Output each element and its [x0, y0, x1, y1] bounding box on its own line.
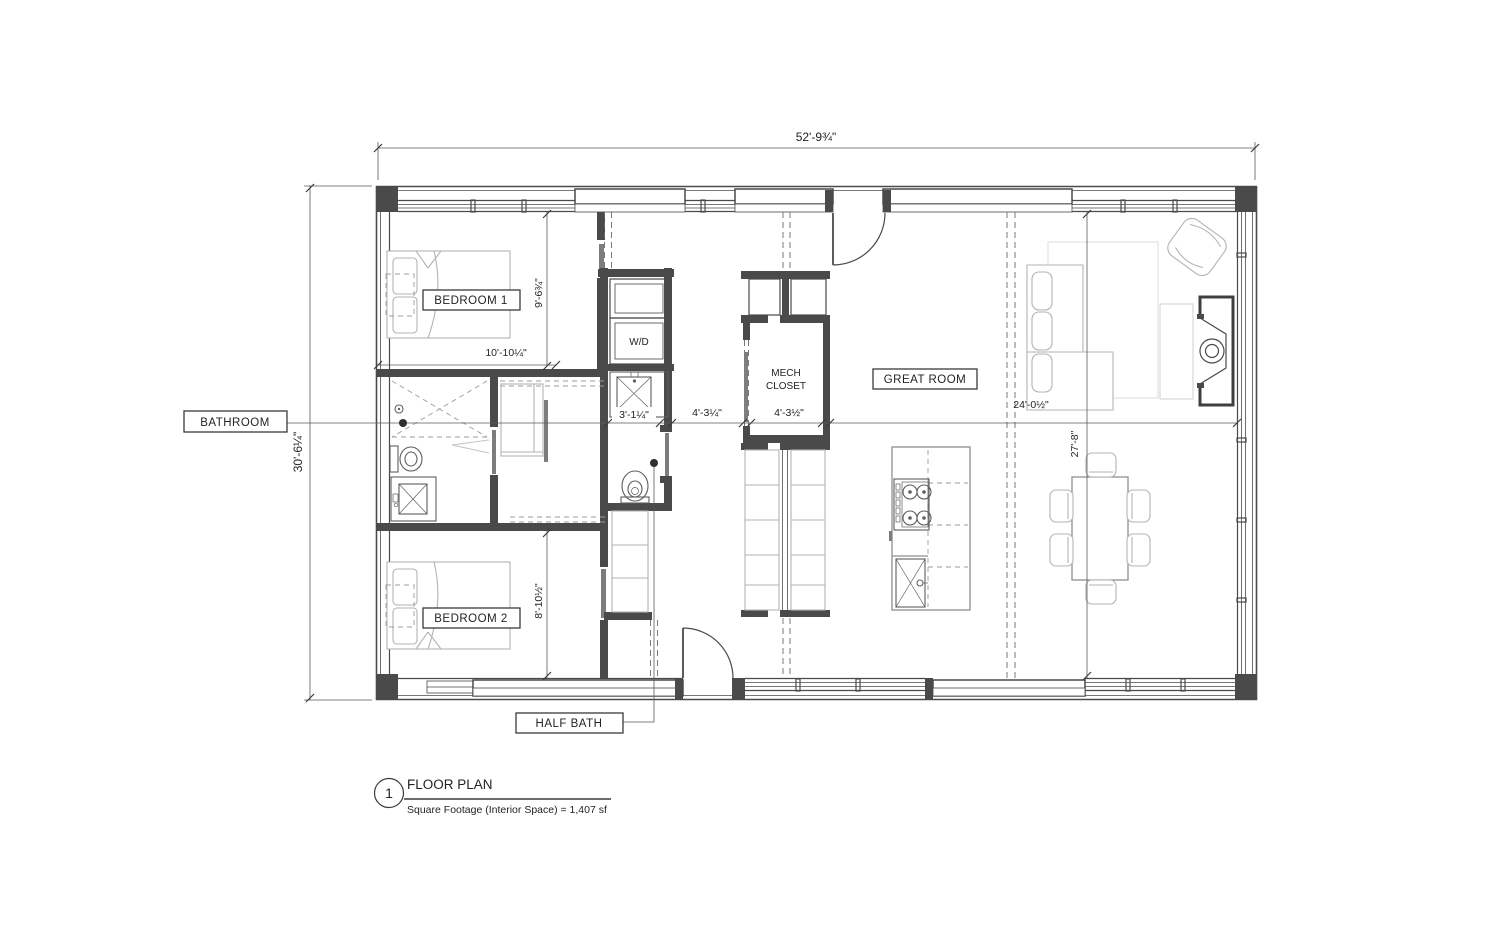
dining-chair — [1086, 453, 1116, 477]
toilet-symbol-bathroom — [390, 446, 422, 472]
door-swing-bathroom — [452, 440, 489, 453]
label-mech-closet-line1: MECH — [771, 368, 800, 379]
sink-symbol-bathroom — [391, 477, 436, 521]
hall-shelving-east — [741, 443, 830, 617]
wall-panels-top — [575, 189, 1072, 212]
door-entry — [683, 628, 733, 678]
pocket-door-bathroom — [492, 430, 496, 474]
dining-chair — [1050, 490, 1073, 522]
dim-half-bath-width: 3'-1¼" — [619, 409, 649, 421]
bed-symbol-bedroom-2 — [386, 562, 510, 649]
dim-great-room-depth: 27'-8" — [1069, 430, 1081, 457]
room-labels: BEDROOM 1 BEDROOM 2 BATHROOM HALF BATH G… — [184, 290, 977, 733]
dining-table-symbol — [1050, 453, 1150, 604]
label-washer-dryer: W/D — [629, 337, 648, 348]
fireplace-symbol — [1197, 294, 1236, 408]
dim-mech-closet-width: 4'-3½" — [774, 407, 804, 419]
dim-bedroom-1-depth: 9'-6¾" — [533, 278, 545, 308]
sofa-symbol — [1027, 265, 1113, 410]
shower-symbol — [392, 381, 489, 453]
leader-dot-half-bath — [650, 459, 658, 467]
label-great-room: GREAT ROOM — [884, 374, 967, 386]
pocket-door-half-bath — [665, 433, 669, 476]
title-block: 1 FLOOR PLAN Square Footage (Interior Sp… — [375, 777, 612, 816]
label-bedroom-2: BEDROOM 2 — [434, 613, 508, 625]
label-half-bath: HALF BATH — [536, 718, 603, 730]
dim-hall-width: 4'-3¼" — [692, 407, 722, 419]
dining-chair — [1050, 534, 1073, 566]
floor-plan-drawing: 52'-9¾" 30'-6¼" 9'-6¾" 10'-10¼" 8'-10½" … — [0, 0, 1500, 938]
washer-dryer-symbol — [610, 279, 668, 364]
toilet-symbol-half-bath — [621, 471, 649, 503]
pocket-door-mech-closet — [744, 352, 748, 422]
window-band-bottom — [398, 678, 1237, 700]
drawing-title: FLOOR PLAN — [407, 777, 493, 792]
pocket-door-bedroom-2 — [601, 569, 606, 618]
dining-chair — [1127, 534, 1150, 566]
door-top — [833, 213, 885, 265]
label-bathroom: BATHROOM — [200, 417, 270, 429]
detail-number: 1 — [385, 785, 393, 801]
label-mech-closet-line2: CLOSET — [766, 381, 806, 392]
dim-bedroom-2-depth: 8'-10½" — [533, 583, 545, 619]
leader-dot-bathroom — [399, 419, 407, 427]
dining-chair — [1086, 580, 1116, 604]
floor-plan-sheet: 52'-9¾" 30'-6¼" 9'-6¾" 10'-10¼" 8'-10½" … — [0, 0, 1500, 938]
dim-bedroom-1-width: 10'-10¼" — [485, 347, 527, 359]
dim-overall-depth: 30'-6¼" — [291, 432, 305, 473]
square-footage-note: Square Footage (Interior Space) = 1,407 … — [407, 804, 607, 816]
lounge-chair-symbol — [1164, 215, 1230, 280]
dim-great-room-width: 24'-0½" — [1013, 399, 1049, 411]
dim-overall-width: 52'-9¾" — [796, 130, 837, 144]
label-bedroom-1: BEDROOM 1 — [434, 295, 508, 307]
dining-chair — [1127, 490, 1150, 522]
kitchen-island-symbol — [889, 447, 970, 610]
hall-shelving-west — [604, 511, 652, 620]
